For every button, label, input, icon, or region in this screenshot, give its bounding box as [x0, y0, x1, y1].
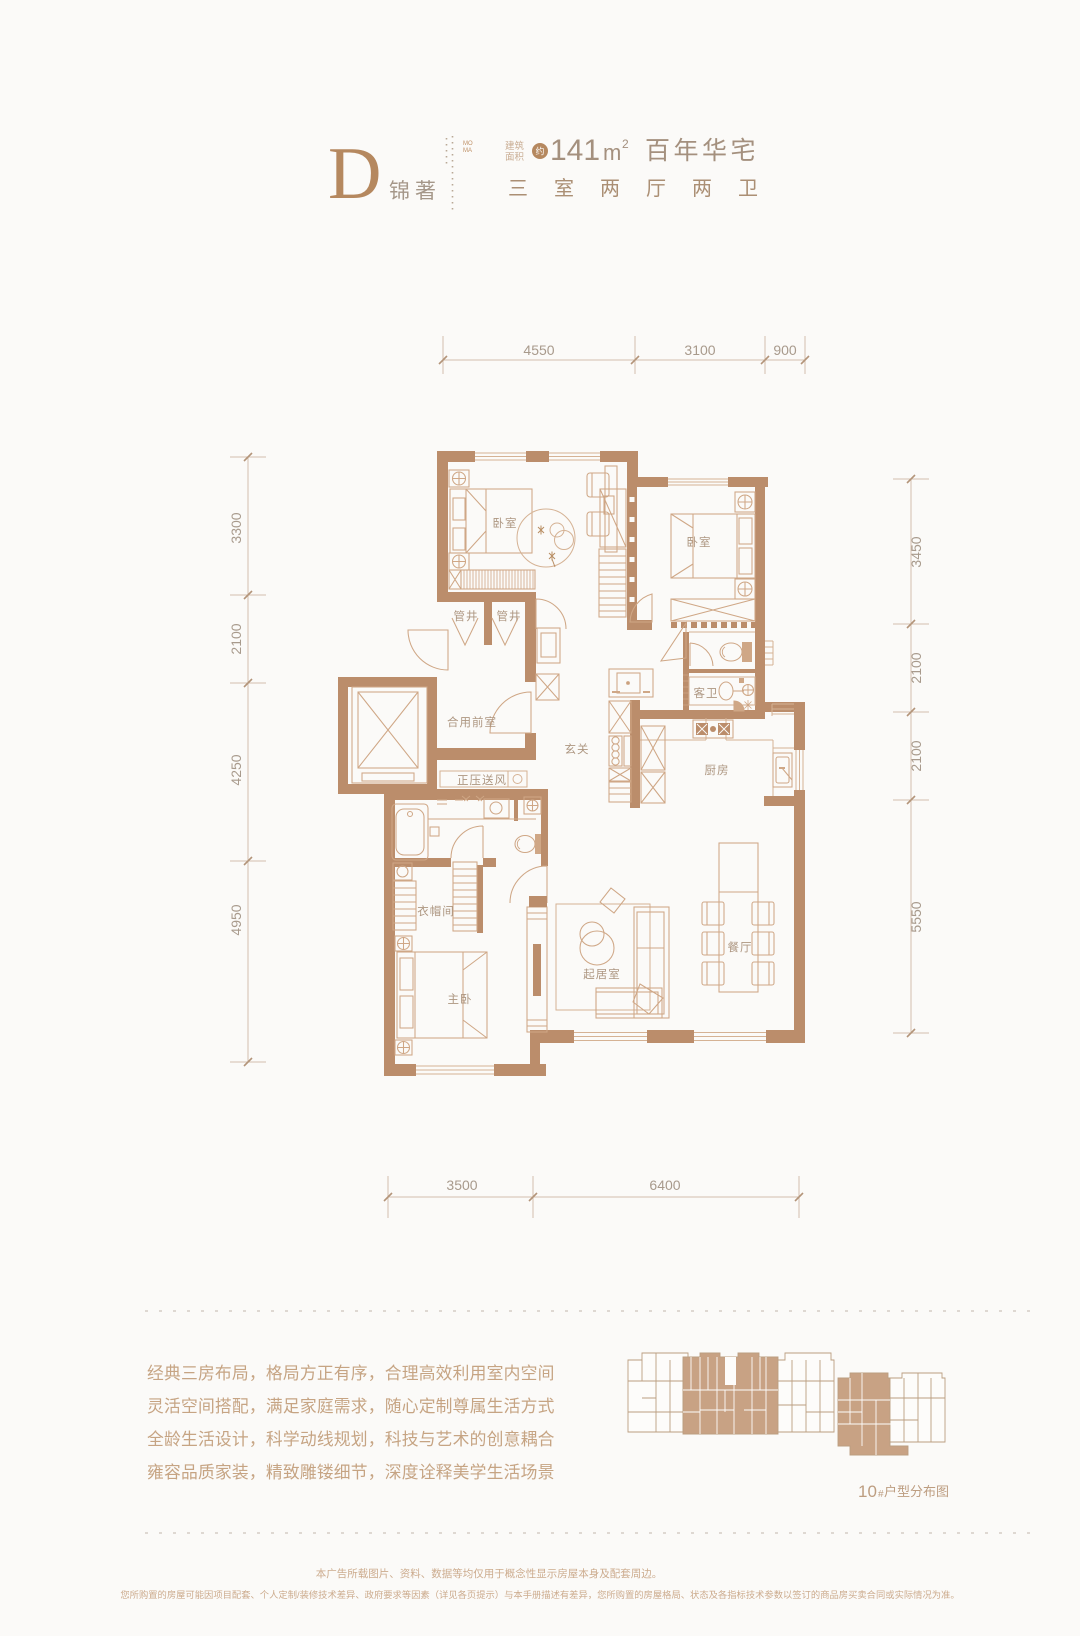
- svg-text:管井: 管井: [454, 609, 479, 623]
- svg-text:5550: 5550: [908, 901, 924, 932]
- svg-text:约: 约: [535, 146, 544, 157]
- svg-text:3450: 3450: [908, 536, 924, 567]
- svg-text:4550: 4550: [523, 342, 554, 358]
- svg-text:3500: 3500: [446, 1177, 477, 1193]
- svg-text:MA: MA: [463, 148, 472, 154]
- svg-text:2100: 2100: [908, 740, 924, 771]
- svg-text:建筑: 建筑: [505, 140, 525, 152]
- svg-text:玄关: 玄关: [565, 742, 590, 756]
- svg-text:本广告所载图片、资料、数据等均仅用于概念性显示房屋本身及配套: 本广告所载图片、资料、数据等均仅用于概念性显示房屋本身及配套周边。: [316, 1567, 663, 1580]
- svg-text:经典三房布局，格局方正有序，合理高效利用室内空间: 经典三房布局，格局方正有序，合理高效利用室内空间: [147, 1364, 555, 1383]
- svg-text:10: 10: [858, 1482, 877, 1501]
- svg-text:面积: 面积: [505, 151, 525, 163]
- svg-text:餐厅: 餐厅: [728, 940, 753, 954]
- svg-text:厨房: 厨房: [705, 764, 730, 777]
- svg-text:衣帽间: 衣帽间: [417, 904, 455, 918]
- svg-text:4250: 4250: [228, 754, 244, 785]
- svg-text:客卫: 客卫: [694, 686, 719, 700]
- svg-text:户型分布图: 户型分布图: [884, 1484, 949, 1499]
- svg-text:2: 2: [622, 137, 629, 151]
- svg-text:m: m: [603, 140, 621, 165]
- svg-text:灵活空间搭配，满足家庭需求，随心定制尊属生活方式: 灵活空间搭配，满足家庭需求，随心定制尊属生活方式: [147, 1397, 555, 1416]
- svg-text:卧室: 卧室: [493, 516, 518, 530]
- svg-text:D: D: [328, 133, 381, 215]
- svg-text:合用前室: 合用前室: [447, 715, 497, 729]
- svg-text:正压送风: 正压送风: [457, 773, 507, 787]
- svg-text:起居室: 起居室: [583, 967, 621, 981]
- svg-text:900: 900: [773, 342, 797, 358]
- svg-text:百年华宅: 百年华宅: [645, 137, 759, 165]
- svg-text:2100: 2100: [228, 623, 244, 654]
- svg-text:141: 141: [550, 134, 600, 167]
- svg-text:锦著: 锦著: [389, 180, 441, 203]
- svg-text:管井: 管井: [497, 609, 522, 623]
- svg-text:全龄生活设计，科学动线规划，科技与艺术的创意耦合: 全龄生活设计，科学动线规划，科技与艺术的创意耦合: [147, 1430, 555, 1449]
- svg-text:3300: 3300: [228, 512, 244, 543]
- svg-text:MO: MO: [463, 141, 473, 147]
- svg-text:您所购置的房屋可能因项目配套、个人定制/装修技术差异、政府要: 您所购置的房屋可能因项目配套、个人定制/装修技术差异、政府要求等因素（详见各页提…: [120, 1589, 959, 1600]
- svg-text:雍容品质家装，精致雕镂细节，深度诠释美学生活场景: 雍容品质家装，精致雕镂细节，深度诠释美学生活场景: [147, 1463, 555, 1482]
- svg-text:3100: 3100: [684, 342, 715, 358]
- svg-text:卧室: 卧室: [687, 535, 712, 549]
- svg-text:主卧: 主卧: [448, 993, 473, 1006]
- svg-text:三室两厅两卫: 三室两厅两卫: [508, 177, 784, 200]
- svg-text:6400: 6400: [649, 1177, 680, 1193]
- svg-text:4950: 4950: [228, 904, 244, 935]
- svg-text:2100: 2100: [908, 652, 924, 683]
